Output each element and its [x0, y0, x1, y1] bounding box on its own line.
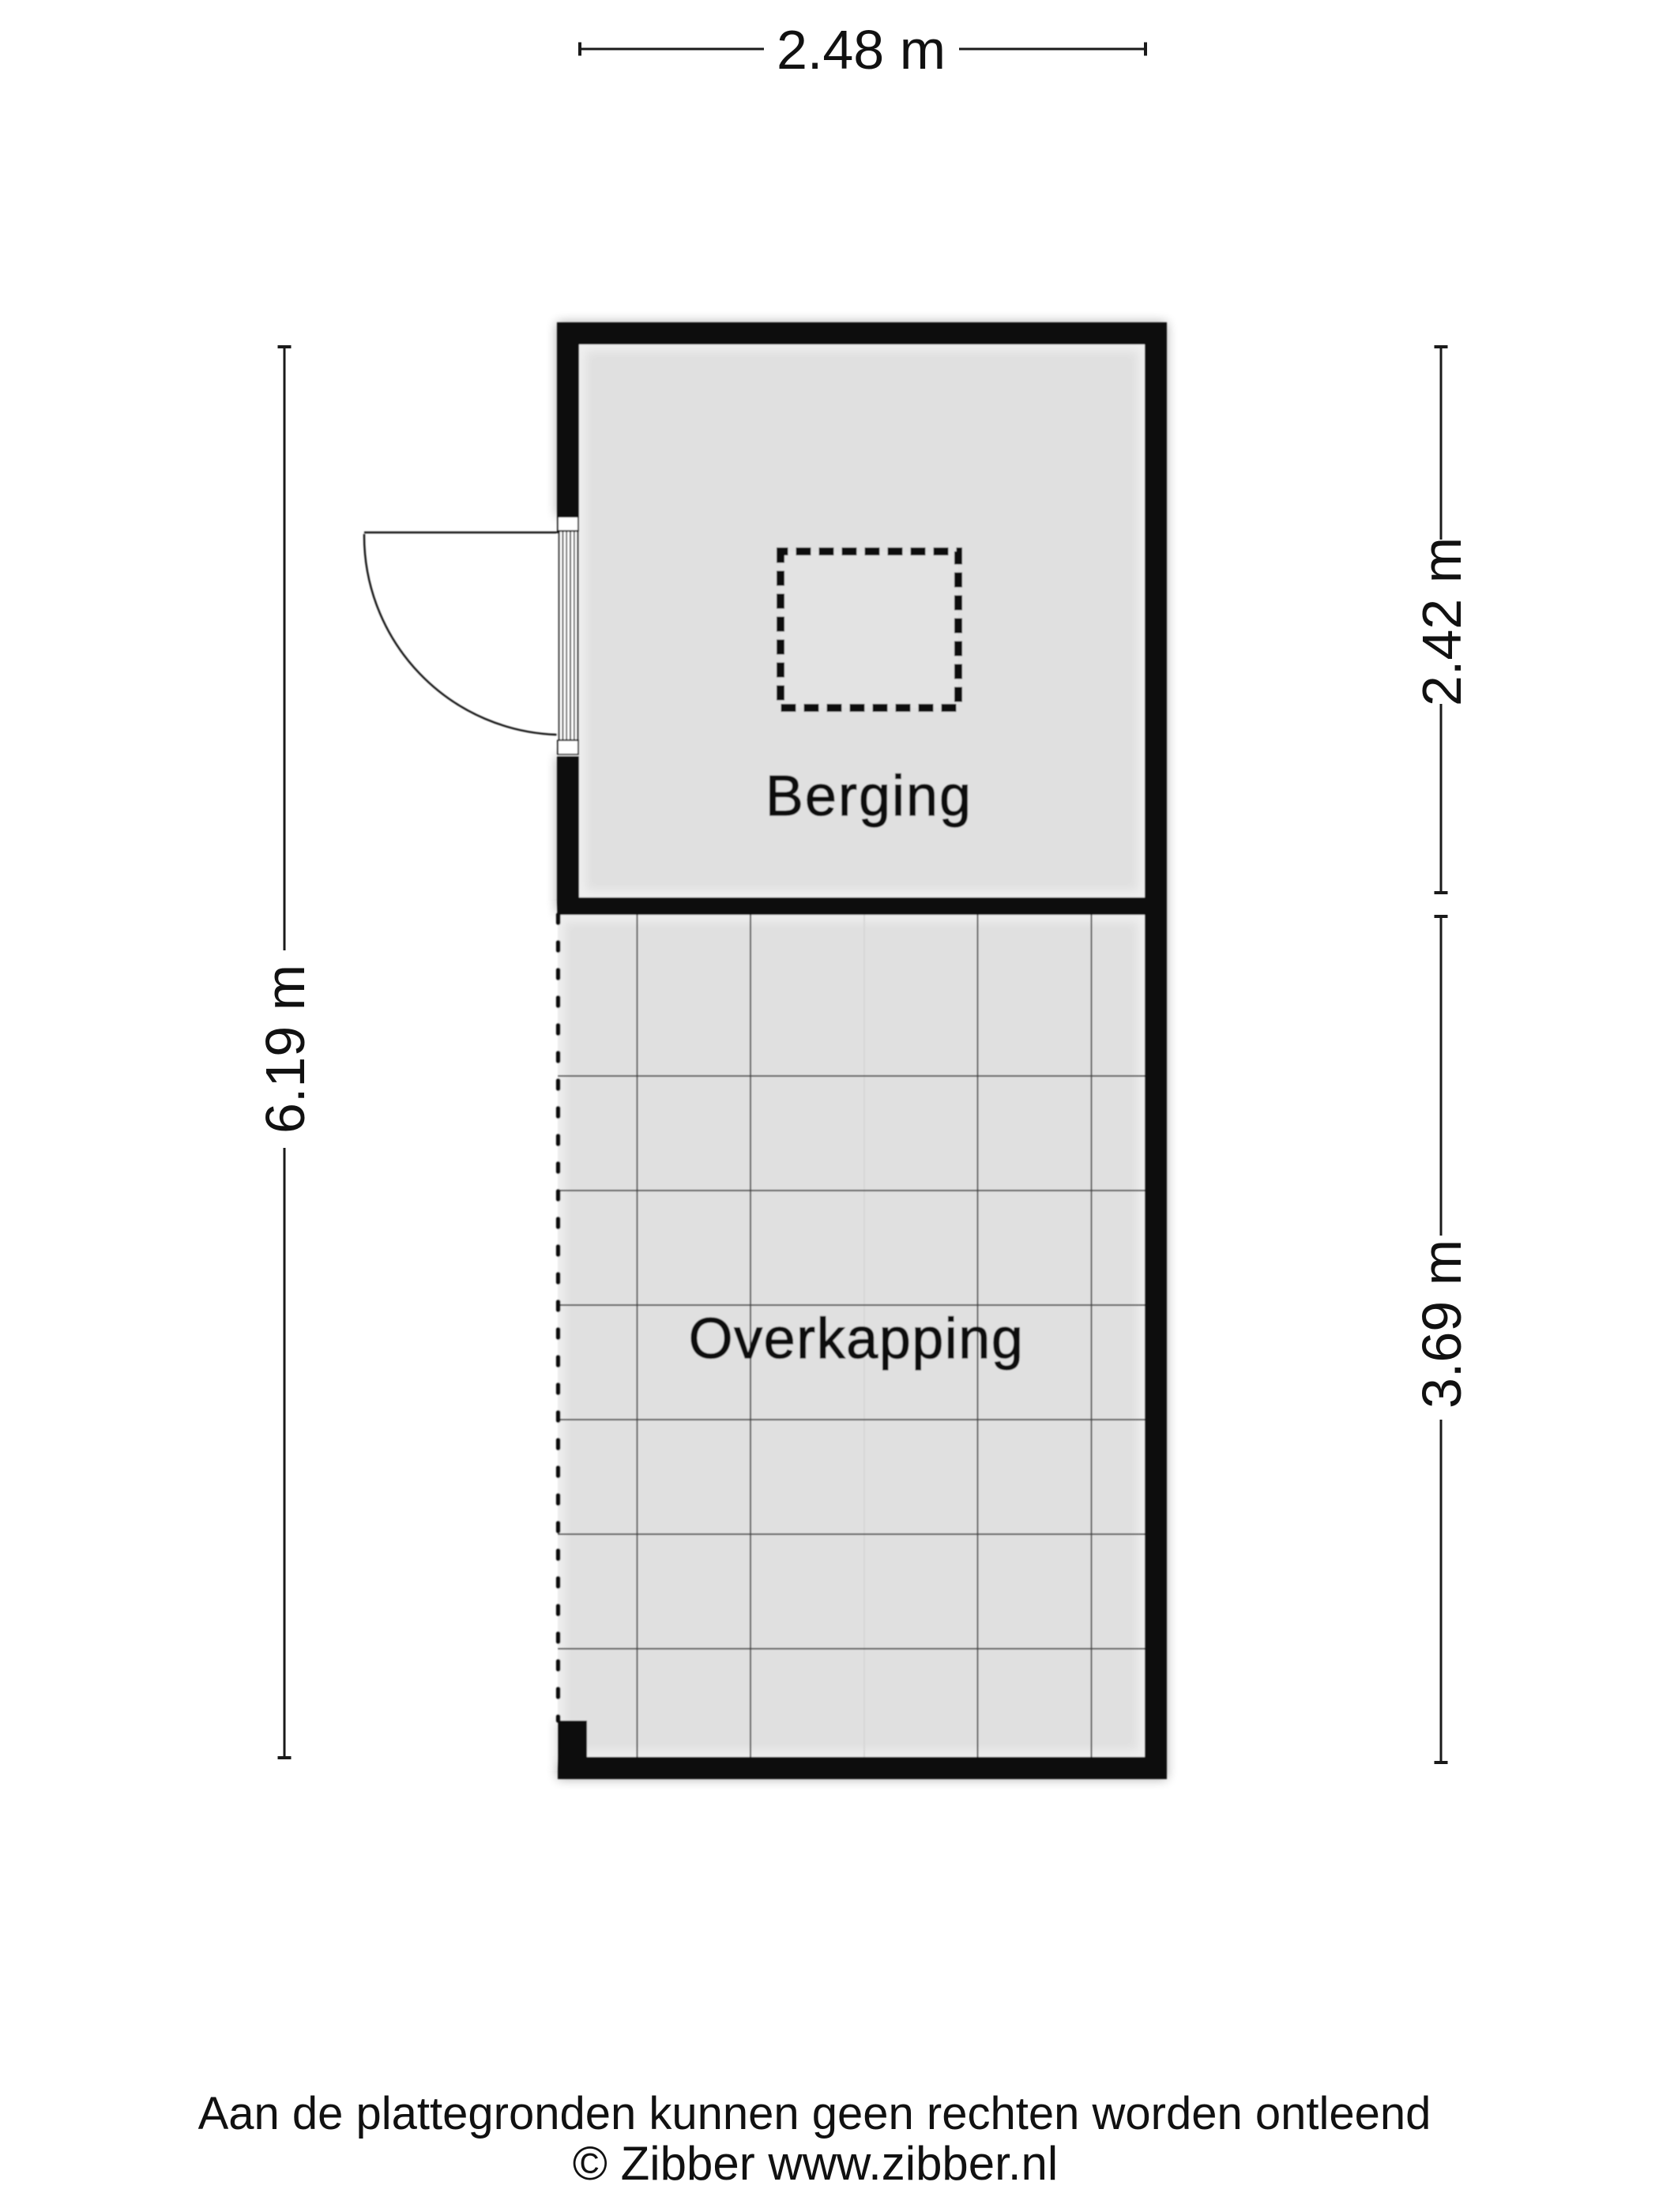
svg-text:6.19 m: 6.19 m	[254, 965, 316, 1134]
svg-text:2.42 m: 2.42 m	[1411, 537, 1473, 706]
svg-text:© Zibber www.zibber.nl: © Zibber www.zibber.nl	[573, 2137, 1058, 2190]
svg-text:Berging: Berging	[766, 765, 972, 828]
svg-text:Overkapping: Overkapping	[689, 1307, 1025, 1371]
svg-text:Aan de plattegronden kunnen ge: Aan de plattegronden kunnen geen rechten…	[198, 2088, 1431, 2139]
svg-text:2.48 m: 2.48 m	[777, 19, 946, 81]
svg-text:3.69 m: 3.69 m	[1411, 1240, 1473, 1409]
